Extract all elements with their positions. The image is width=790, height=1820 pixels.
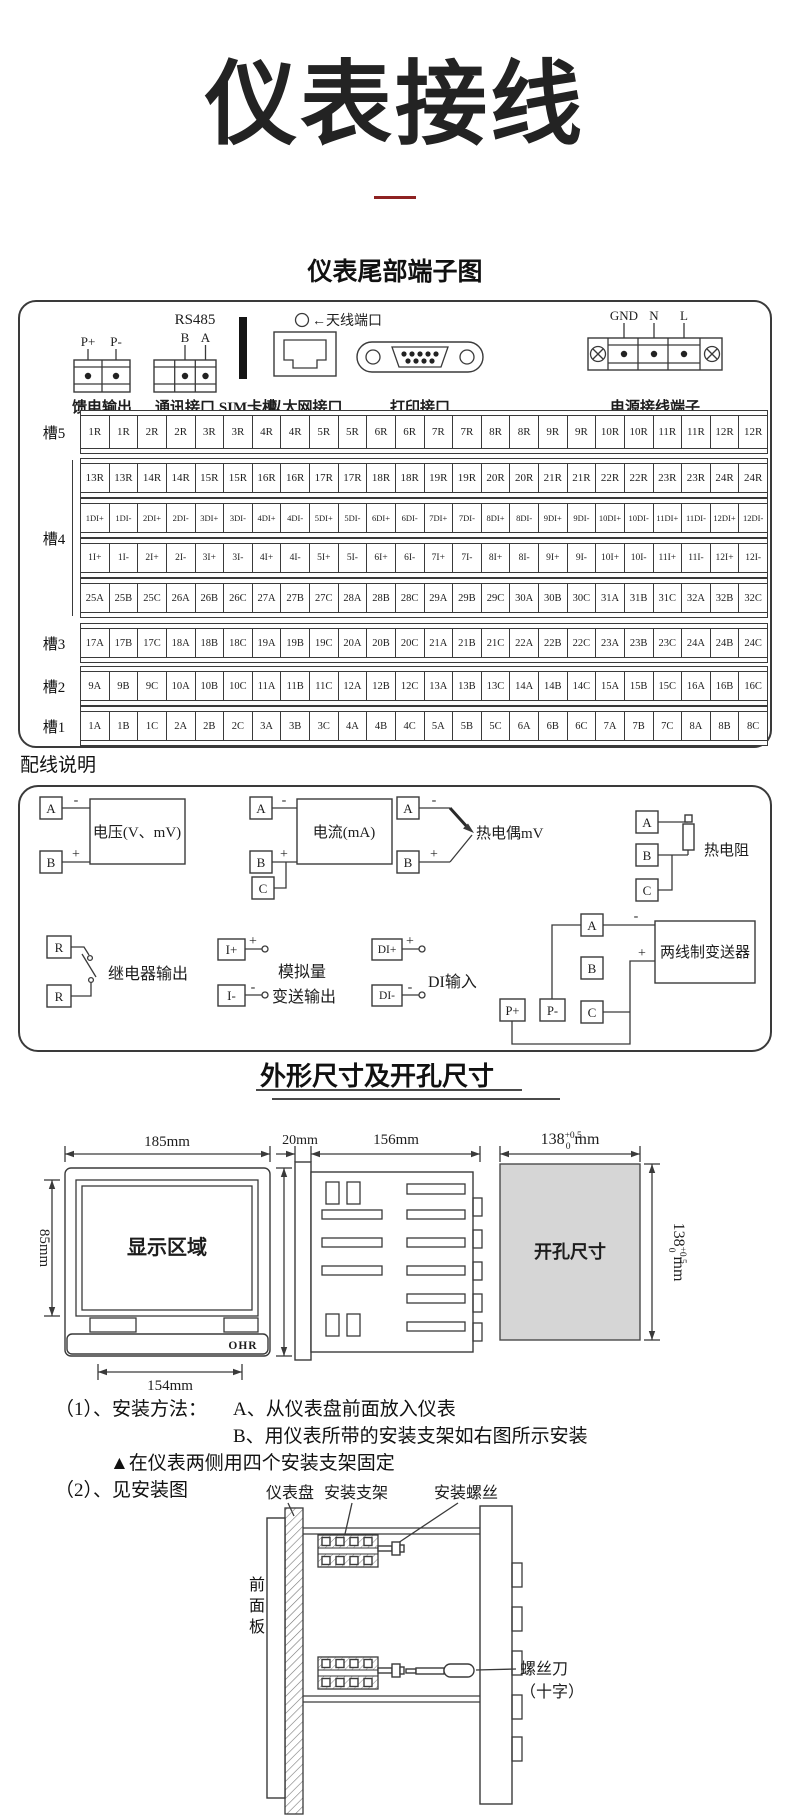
rtd-label: 热电阻 bbox=[704, 842, 749, 859]
transmitter-diagram: A - B C 两线制变送器 + P+ P- bbox=[500, 909, 755, 1044]
terminal-cell: 1I- bbox=[110, 544, 139, 572]
terminal-cell: 9B bbox=[110, 672, 139, 700]
terminal-cell: 7B bbox=[625, 712, 654, 740]
terminal-cell: 10B bbox=[196, 672, 225, 700]
terminal-cell: 21R bbox=[568, 464, 597, 492]
terminal-cell: 2DI+ bbox=[138, 504, 167, 532]
display-area-label: 显示区域 bbox=[127, 1235, 207, 1259]
terminal-cell: 6R bbox=[396, 416, 425, 448]
terminal-cell: 6I- bbox=[396, 544, 425, 572]
body-depth-dim: 156mm bbox=[373, 1132, 419, 1148]
terminal-cell: 3DI+ bbox=[196, 504, 225, 532]
terminal-cell: 19B bbox=[281, 629, 310, 657]
terminal-cell: 12DI+ bbox=[711, 504, 740, 532]
terminal-cell: 9C bbox=[138, 672, 167, 700]
terminal-cell: 27C bbox=[310, 584, 339, 612]
plus-sign: + bbox=[406, 934, 414, 949]
terminal-cell: 27A bbox=[253, 584, 282, 612]
terminal-cell: 16C bbox=[739, 672, 767, 700]
terminal-cell: 18C bbox=[224, 629, 253, 657]
terminal-cell: 9R bbox=[568, 416, 597, 448]
pin-c: C bbox=[643, 883, 652, 898]
title-accent-rule bbox=[374, 196, 416, 199]
terminal-cell: 25B bbox=[110, 584, 139, 612]
terminal-cell: 1DI+ bbox=[81, 504, 110, 532]
terminal-row: 17A17B17C18A18B18C19A19B19C20A20B20C21A2… bbox=[81, 629, 767, 657]
antenna-port-label: ←天线端口 bbox=[312, 313, 382, 329]
terminal-cell: 4R bbox=[281, 416, 310, 448]
terminal-cell: 7C bbox=[654, 712, 683, 740]
install-step1-a: A、从仪表盘前面放入仪表 bbox=[233, 1394, 456, 1421]
terminal-cell: 3I+ bbox=[196, 544, 225, 572]
terminal-cell: 25C bbox=[138, 584, 167, 612]
terminal-cell: 23B bbox=[625, 629, 654, 657]
terminal-cell: 4B bbox=[367, 712, 396, 740]
pin-c: C bbox=[588, 1005, 597, 1020]
analog-output-diagram: I+ + I- - 模拟量 变送输出 bbox=[218, 934, 336, 1006]
pin-a: A bbox=[256, 801, 266, 816]
minus-sign: - bbox=[634, 909, 639, 924]
terminal-row: 1I+1I-2I+2I-3I+3I-4I+4I-5I+5I-6I+6I-7I+7… bbox=[81, 544, 767, 572]
terminal-strip-slot4-di: 1DI+1DI-2DI+2DI-3DI+3DI-4DI+4DI-5DI+5DI-… bbox=[80, 498, 768, 538]
terminal-cell: 5R bbox=[310, 416, 339, 448]
terminal-cell: 32C bbox=[739, 584, 767, 612]
terminal-cell: 22R bbox=[625, 464, 654, 492]
install-step2: （2）、见安装图 bbox=[55, 1475, 188, 1502]
terminal-cell: 1C bbox=[138, 712, 167, 740]
cutout-width-dim: 138+0.50mm bbox=[541, 1131, 600, 1152]
side-view: 20mm 156mm bbox=[276, 1132, 482, 1360]
minus-sign: - bbox=[408, 980, 413, 995]
terminal-cell: 24R bbox=[739, 464, 767, 492]
terminal-cell: 21C bbox=[482, 629, 511, 657]
wiring-diagram-box: A - B + 电压(V、mV) A - B + C 电流(mA) A bbox=[18, 785, 772, 1052]
terminal-cell: 10C bbox=[224, 672, 253, 700]
terminal-cell: 4R bbox=[253, 416, 282, 448]
terminal-cell: 6DI+ bbox=[367, 504, 396, 532]
terminal-cell: 17A bbox=[81, 629, 110, 657]
terminal-cell: 14A bbox=[510, 672, 539, 700]
minus-sign: - bbox=[432, 793, 437, 808]
terminal-cell: 12C bbox=[396, 672, 425, 700]
rear-connectors-drawing: P+ P- 馈电输出 RS485 B A 通讯接口 bbox=[20, 302, 770, 417]
terminal-cell: 6B bbox=[539, 712, 568, 740]
terminal-cell: 24A bbox=[682, 629, 711, 657]
terminal-cell: 13B bbox=[453, 672, 482, 700]
terminal-cell: 13R bbox=[81, 464, 110, 492]
thermocouple-label: 热电偶mV bbox=[476, 825, 544, 842]
current-input-diagram: A - B + C 电流(mA) bbox=[250, 793, 392, 899]
terminal-cell: 11I- bbox=[682, 544, 711, 572]
terminal-cell: 17C bbox=[138, 629, 167, 657]
terminal-cell: 19R bbox=[425, 464, 454, 492]
terminal-cell: 28B bbox=[367, 584, 396, 612]
terminal-cell: 22C bbox=[568, 629, 597, 657]
terminal-cell: 10R bbox=[625, 416, 654, 448]
terminal-cell: 4A bbox=[339, 712, 368, 740]
terminal-cell: 1R bbox=[110, 416, 139, 448]
terminal-cell: 18R bbox=[367, 464, 396, 492]
page-title: 仪表接线 bbox=[0, 30, 790, 163]
install-step1-b: B、用仪表所带的安装支架如右图所示安装 bbox=[233, 1421, 588, 1448]
pin-di-minus: DI- bbox=[379, 990, 395, 1002]
plus-sign: + bbox=[72, 847, 80, 862]
terminal-cell: 8R bbox=[510, 416, 539, 448]
terminal-cell: 26B bbox=[196, 584, 225, 612]
antenna-port-icon bbox=[296, 314, 309, 327]
terminal-cell: 2R bbox=[167, 416, 196, 448]
terminal-cell: 19C bbox=[310, 629, 339, 657]
terminal-strip-slot2: 9A9B9C10A10B10C11A11B11C12A12B12C13A13B1… bbox=[80, 666, 768, 706]
terminal-cell: 6DI- bbox=[396, 504, 425, 532]
terminal-cell: 12I- bbox=[739, 544, 767, 572]
terminal-cell: 4DI- bbox=[281, 504, 310, 532]
installation-diagram: 仪表盘 安装支架 安装螺丝 bbox=[228, 1482, 652, 1818]
terminal-cell: 9I+ bbox=[539, 544, 568, 572]
terminal-cell: 3C bbox=[310, 712, 339, 740]
terminal-cell: 22B bbox=[539, 629, 568, 657]
terminal-cell: 9DI- bbox=[568, 504, 597, 532]
terminal-row: 1A1B1C2A2B2C3A3B3C4A4B4C5A5B5C6A6B6C7A7B… bbox=[81, 712, 767, 740]
terminal-cell: 14C bbox=[568, 672, 597, 700]
terminal-strip-slot3: 17A17B17C18A18B18C19A19B19C20A20B20C21A2… bbox=[80, 623, 768, 663]
terminal-cell: 27B bbox=[281, 584, 310, 612]
terminal-cell: 29C bbox=[482, 584, 511, 612]
terminal-cell: 8DI- bbox=[510, 504, 539, 532]
plus-sign: + bbox=[638, 946, 646, 961]
terminal-cell: 5DI- bbox=[339, 504, 368, 532]
terminal-cell: 10R bbox=[596, 416, 625, 448]
terminal-cell: 13A bbox=[425, 672, 454, 700]
terminal-cell: 10A bbox=[167, 672, 196, 700]
analog-label-1: 模拟量 bbox=[278, 963, 326, 981]
terminal-cell: 25A bbox=[81, 584, 110, 612]
terminal-cell: 6R bbox=[367, 416, 396, 448]
display-height-dim: 85mm bbox=[36, 1229, 52, 1268]
terminal-cell: 2B bbox=[196, 712, 225, 740]
terminal-cell: 13C bbox=[482, 672, 511, 700]
terminal-cell: 2A bbox=[167, 712, 196, 740]
plus-sign: + bbox=[249, 934, 257, 949]
install-step1-prefix: （1）、安装方法： bbox=[55, 1394, 207, 1421]
mounting-screw-bottom bbox=[378, 1664, 404, 1677]
terminal-strip-slot4-r: 13R13R14R14R15R15R16R16R17R17R18R18R19R1… bbox=[80, 458, 768, 498]
terminal-cell: 7R bbox=[453, 416, 482, 448]
terminal-cell: 26A bbox=[167, 584, 196, 612]
terminal-cell: 2I+ bbox=[138, 544, 167, 572]
terminal-cell: 17R bbox=[310, 464, 339, 492]
terminal-cell: 5I- bbox=[339, 544, 368, 572]
terminal-cell: 3I- bbox=[224, 544, 253, 572]
dimensions-underline-1 bbox=[256, 1089, 522, 1091]
terminal-cell: 11R bbox=[682, 416, 711, 448]
terminal-cell: 23R bbox=[682, 464, 711, 492]
pin-b: B bbox=[404, 855, 413, 870]
relay-output-diagram: R R 继电器输出 bbox=[47, 936, 188, 1007]
terminal-cell: 6C bbox=[568, 712, 597, 740]
terminal-cell: 2R bbox=[138, 416, 167, 448]
terminal-cell: 22A bbox=[510, 629, 539, 657]
terminal-cell: 3R bbox=[224, 416, 253, 448]
terminal-cell: 29B bbox=[453, 584, 482, 612]
feed-output-connector: P+ P- 馈电输出 bbox=[71, 334, 132, 416]
section-title-rear-terminals: 仪表尾部端子图 bbox=[0, 252, 790, 288]
terminal-cell: 12I+ bbox=[711, 544, 740, 572]
comm-pin-b: B bbox=[181, 330, 190, 345]
terminal-cell: 15A bbox=[596, 672, 625, 700]
terminal-row: 1DI+1DI-2DI+2DI-3DI+3DI-4DI+4DI-5DI+5DI-… bbox=[81, 504, 767, 532]
screwdriver-label-2: （十字） bbox=[520, 1683, 584, 1701]
power-pin-gnd: GND bbox=[610, 308, 638, 323]
terminal-cell: 7I- bbox=[453, 544, 482, 572]
thermocouple-diagram: A - B + 热电偶mV bbox=[397, 793, 544, 873]
terminal-strip-slot1: 1A1B1C2A2B2C3A3B3C4A4B4C5A5B5C6A6B6C7A7B… bbox=[80, 706, 768, 746]
terminal-cell: 5R bbox=[339, 416, 368, 448]
terminal-cell: 11B bbox=[281, 672, 310, 700]
terminal-cell: 20C bbox=[396, 629, 425, 657]
terminal-cell: 11I+ bbox=[654, 544, 683, 572]
terminal-cell: 24C bbox=[739, 629, 767, 657]
terminal-cell: 32B bbox=[711, 584, 740, 612]
resistor-icon bbox=[683, 824, 694, 850]
power-connector: GND N L 电源接线端子 bbox=[588, 308, 722, 416]
terminal-cell: 10I- bbox=[625, 544, 654, 572]
terminal-cell: 11C bbox=[310, 672, 339, 700]
terminal-cell: 9R bbox=[539, 416, 568, 448]
terminal-cell: 15R bbox=[196, 464, 225, 492]
terminal-cell: 14B bbox=[539, 672, 568, 700]
terminal-cell: 8DI+ bbox=[482, 504, 511, 532]
terminal-cell: 8R bbox=[482, 416, 511, 448]
terminal-cell: 21B bbox=[453, 629, 482, 657]
slot3-label: 槽3 bbox=[34, 633, 74, 654]
pin-b: B bbox=[588, 961, 597, 976]
pin-c: C bbox=[259, 881, 268, 896]
terminal-cell: 3R bbox=[196, 416, 225, 448]
terminal-row: 25A25B25C26A26B26C27A27B27C28A28B28C29A2… bbox=[81, 584, 767, 612]
terminal-cell: 16B bbox=[711, 672, 740, 700]
pin-p-plus: P+ bbox=[505, 1004, 519, 1018]
pin-b: B bbox=[643, 848, 652, 863]
pin-a: A bbox=[46, 801, 56, 816]
terminal-cell: 7I+ bbox=[425, 544, 454, 572]
rtd-diagram: A B C 热电阻 bbox=[636, 811, 749, 901]
terminal-strip-slot4-i: 1I+1I-2I+2I-3I+3I-4I+4I-5I+5I-6I+6I-7I+7… bbox=[80, 538, 768, 578]
power-pin-n: N bbox=[649, 308, 659, 323]
voltage-label: 电压(V、mV) bbox=[93, 824, 181, 841]
pin-r2: R bbox=[55, 989, 64, 1004]
transmitter-label: 两线制变送器 bbox=[660, 944, 750, 961]
slot5-label: 槽5 bbox=[34, 422, 74, 443]
screwdriver-icon bbox=[406, 1664, 474, 1677]
minus-sign: - bbox=[282, 793, 287, 808]
terminal-cell: 3DI- bbox=[224, 504, 253, 532]
terminal-cell: 15C bbox=[654, 672, 683, 700]
terminal-cell: 19R bbox=[453, 464, 482, 492]
pin-b: B bbox=[257, 855, 266, 870]
terminal-cell: 4I- bbox=[281, 544, 310, 572]
di-input-diagram: DI+ + DI- - DI输入 bbox=[372, 934, 477, 1006]
comm-pin-a: A bbox=[201, 330, 211, 345]
terminal-cell: 23R bbox=[654, 464, 683, 492]
terminal-cell: 12R bbox=[739, 416, 767, 448]
terminal-cell: 16A bbox=[682, 672, 711, 700]
terminal-cell: 16R bbox=[253, 464, 282, 492]
minus-sign: - bbox=[74, 793, 79, 808]
terminal-cell: 21A bbox=[425, 629, 454, 657]
terminal-cell: 1DI- bbox=[110, 504, 139, 532]
wiring-diagrams: A - B + 电压(V、mV) A - B + C 电流(mA) A bbox=[20, 787, 770, 1050]
dimensions-underline-2 bbox=[272, 1098, 560, 1100]
mounting-bracket-bottom bbox=[318, 1657, 378, 1689]
terminal-cell: 12DI- bbox=[739, 504, 767, 532]
terminal-cell: 20A bbox=[339, 629, 368, 657]
pin-a: A bbox=[587, 918, 597, 933]
terminal-cell: 21R bbox=[539, 464, 568, 492]
terminal-cell: 30A bbox=[510, 584, 539, 612]
instrument-rear-body bbox=[480, 1506, 522, 1804]
brand-logo: OHR bbox=[228, 1340, 257, 1352]
terminal-cell: 10DI+ bbox=[596, 504, 625, 532]
mounting-bracket-top bbox=[318, 1535, 378, 1567]
terminal-cell: 1B bbox=[110, 712, 139, 740]
terminal-cell: 30C bbox=[568, 584, 597, 612]
front-bottom-dim: 154mm bbox=[147, 1378, 193, 1394]
dimensions-section-title: 外形尺寸及开孔尺寸 bbox=[0, 1056, 754, 1093]
terminal-cell: 16R bbox=[281, 464, 310, 492]
terminal-cell: 18A bbox=[167, 629, 196, 657]
pin-r1: R bbox=[55, 940, 64, 955]
mounting-screw-top bbox=[378, 1542, 404, 1555]
terminal-cell: 3B bbox=[281, 712, 310, 740]
rs485-label: RS485 bbox=[175, 312, 216, 328]
terminal-cell: 9A bbox=[81, 672, 110, 700]
pin-a: A bbox=[642, 815, 652, 830]
terminal-cell: 19A bbox=[253, 629, 282, 657]
terminal-cell: 17B bbox=[110, 629, 139, 657]
terminal-cell: 14R bbox=[138, 464, 167, 492]
terminal-cell: 8I- bbox=[510, 544, 539, 572]
terminal-row: 9A9B9C10A10B10C11A11B11C12A12B12C13A13B1… bbox=[81, 672, 767, 700]
wiring-section-title: 配线说明 bbox=[20, 750, 96, 777]
terminal-cell: 8C bbox=[739, 712, 767, 740]
terminal-cell: 20B bbox=[367, 629, 396, 657]
slot4-bracket-line bbox=[72, 460, 73, 616]
panel-label: 仪表盘 bbox=[266, 1483, 314, 1502]
feed-pin-minus: P- bbox=[110, 334, 122, 349]
terminal-cell: 7A bbox=[596, 712, 625, 740]
terminal-cell: 2DI- bbox=[167, 504, 196, 532]
voltage-input-diagram: A - B + 电压(V、mV) bbox=[40, 793, 185, 873]
panel-wall bbox=[285, 1508, 303, 1814]
minus-sign: - bbox=[251, 980, 256, 995]
terminal-cell: 17R bbox=[339, 464, 368, 492]
terminal-cell: 5B bbox=[453, 712, 482, 740]
terminal-cell: 1A bbox=[81, 712, 110, 740]
current-label: 电流(mA) bbox=[313, 824, 376, 841]
terminal-cell: 26C bbox=[224, 584, 253, 612]
rear-terminal-diagram: P+ P- 馈电输出 RS485 B A 通讯接口 bbox=[18, 300, 772, 748]
plus-sign: + bbox=[430, 847, 438, 862]
terminal-cell: 7DI+ bbox=[425, 504, 454, 532]
terminal-cell: 1I+ bbox=[81, 544, 110, 572]
terminal-cell: 5DI+ bbox=[310, 504, 339, 532]
terminal-cell: 12A bbox=[339, 672, 368, 700]
terminal-cell: 8B bbox=[711, 712, 740, 740]
terminal-cell: 8A bbox=[682, 712, 711, 740]
terminal-cell: 4C bbox=[396, 712, 425, 740]
terminal-row: 1R1R2R2R3R3R4R4R5R5R6R6R7R7R8R8R9R9R10R1… bbox=[81, 416, 767, 448]
front-width-dim: 185mm bbox=[144, 1134, 190, 1150]
terminal-cell: 8I+ bbox=[482, 544, 511, 572]
terminal-cell: 32A bbox=[682, 584, 711, 612]
terminal-cell: 11R bbox=[654, 416, 683, 448]
terminal-cell: 12B bbox=[367, 672, 396, 700]
terminal-cell: 14R bbox=[167, 464, 196, 492]
terminal-row: 13R13R14R14R15R15R16R16R17R17R18R18R19R1… bbox=[81, 464, 767, 492]
terminal-cell: 11DI+ bbox=[654, 504, 683, 532]
front-panel-plate bbox=[267, 1518, 285, 1798]
terminal-cell: 4DI+ bbox=[253, 504, 282, 532]
terminal-cell: 28C bbox=[396, 584, 425, 612]
install-note: ▲在仪表两侧用四个安装支架固定 bbox=[110, 1448, 395, 1475]
terminal-cell: 28A bbox=[339, 584, 368, 612]
terminal-cell: 24R bbox=[711, 464, 740, 492]
dimension-drawings: 185mm 显示区域 85mm 154mm OHR 154mm 20mm 15 bbox=[30, 1118, 730, 1396]
slot1-label: 槽1 bbox=[34, 716, 74, 737]
terminal-cell: 2I- bbox=[167, 544, 196, 572]
terminal-strip-slot5: 1R1R2R2R3R3R4R4R5R5R6R6R7R7R8R8R9R9R10R1… bbox=[80, 410, 768, 454]
terminal-cell: 9DI+ bbox=[539, 504, 568, 532]
terminal-cell: 11DI- bbox=[682, 504, 711, 532]
slot4-label: 槽4 bbox=[34, 528, 74, 549]
analog-label-2: 变送输出 bbox=[272, 988, 336, 1006]
comm-connector: RS485 B A 通讯接口 bbox=[154, 312, 216, 416]
terminal-cell: 23C bbox=[654, 629, 683, 657]
printer-connector: 打印接口 bbox=[357, 342, 483, 416]
terminal-strip-slot4-abc: 25A25B25C26A26B26C27A27B27C28A28B28C29A2… bbox=[80, 578, 768, 618]
terminal-cell: 5I+ bbox=[310, 544, 339, 572]
terminal-cell: 3A bbox=[253, 712, 282, 740]
power-pin-l: L bbox=[680, 308, 688, 323]
bracket-label: 安装支架 bbox=[324, 1484, 388, 1502]
pin-di-plus: DI+ bbox=[378, 944, 397, 956]
cutout-label: 开孔尺寸 bbox=[534, 1241, 606, 1262]
relay-label: 继电器输出 bbox=[108, 965, 188, 983]
terminal-cell: 24B bbox=[711, 629, 740, 657]
pin-p-minus: P- bbox=[547, 1004, 558, 1018]
terminal-cell: 31C bbox=[654, 584, 683, 612]
feed-pin-plus: P+ bbox=[81, 334, 96, 349]
screwdriver-label: 螺丝刀 bbox=[520, 1660, 568, 1678]
bezel-depth-dim: 20mm bbox=[282, 1133, 318, 1148]
screw-label: 安装螺丝 bbox=[434, 1484, 498, 1502]
terminal-cell: 23A bbox=[596, 629, 625, 657]
terminal-cell: 15B bbox=[625, 672, 654, 700]
terminal-cell: 7DI- bbox=[453, 504, 482, 532]
terminal-cell: 31A bbox=[596, 584, 625, 612]
terminal-cell: 4I+ bbox=[253, 544, 282, 572]
plus-sign: + bbox=[280, 847, 288, 862]
terminal-cell: 10DI- bbox=[625, 504, 654, 532]
front-view: 185mm 显示区域 85mm 154mm OHR 154mm bbox=[36, 1134, 308, 1394]
terminal-cell: 18R bbox=[396, 464, 425, 492]
terminal-cell: 10I+ bbox=[596, 544, 625, 572]
pin-b: B bbox=[47, 855, 56, 870]
terminal-cell: 9I- bbox=[568, 544, 597, 572]
pin-i-plus: I+ bbox=[226, 942, 238, 957]
terminal-cell: 20R bbox=[482, 464, 511, 492]
